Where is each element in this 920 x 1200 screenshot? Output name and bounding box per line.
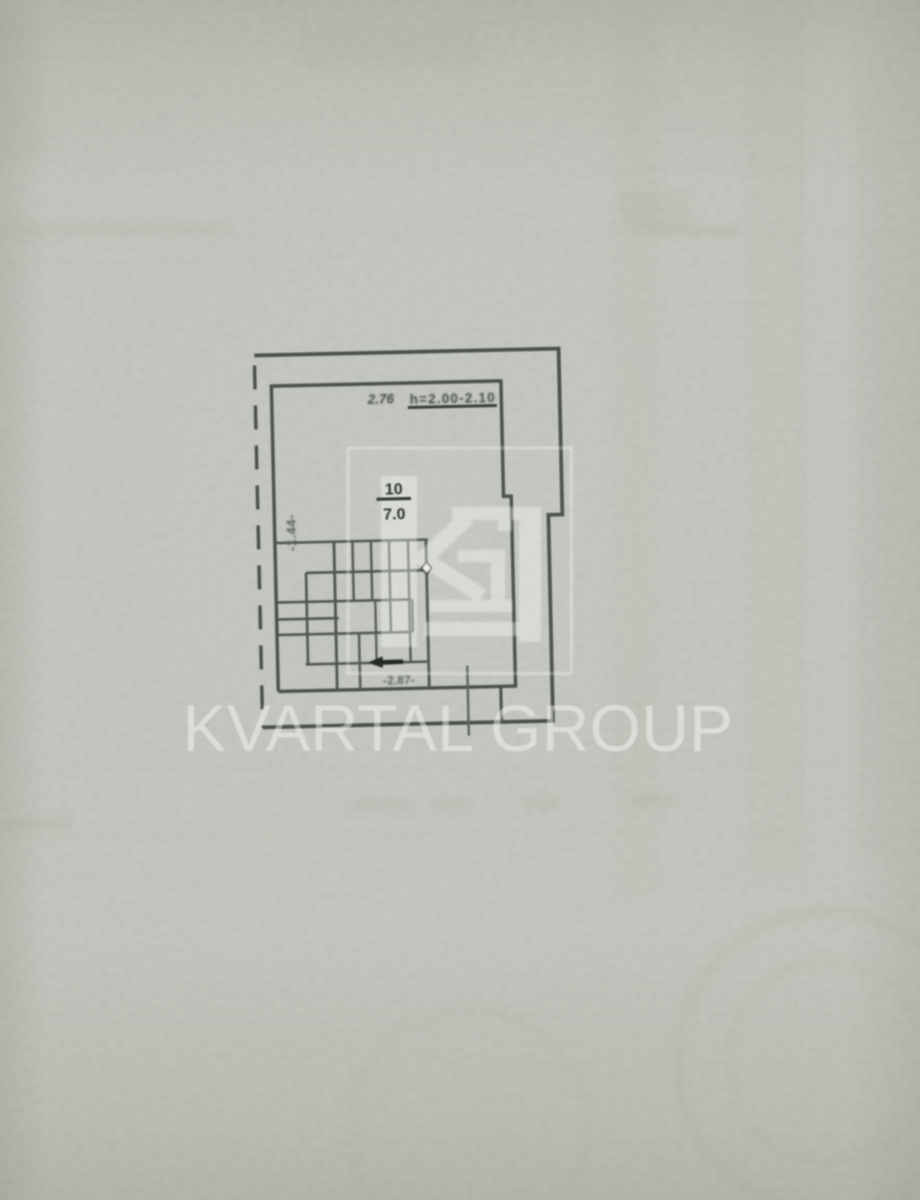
svg-text:7.0: 7.0 bbox=[383, 506, 406, 524]
svg-text:-2.87-: -2.87- bbox=[383, 675, 415, 688]
svg-text:2.76: 2.76 bbox=[367, 391, 395, 407]
svg-text:10: 10 bbox=[385, 481, 403, 498]
svg-text:-1.44-: -1.44- bbox=[283, 514, 299, 551]
